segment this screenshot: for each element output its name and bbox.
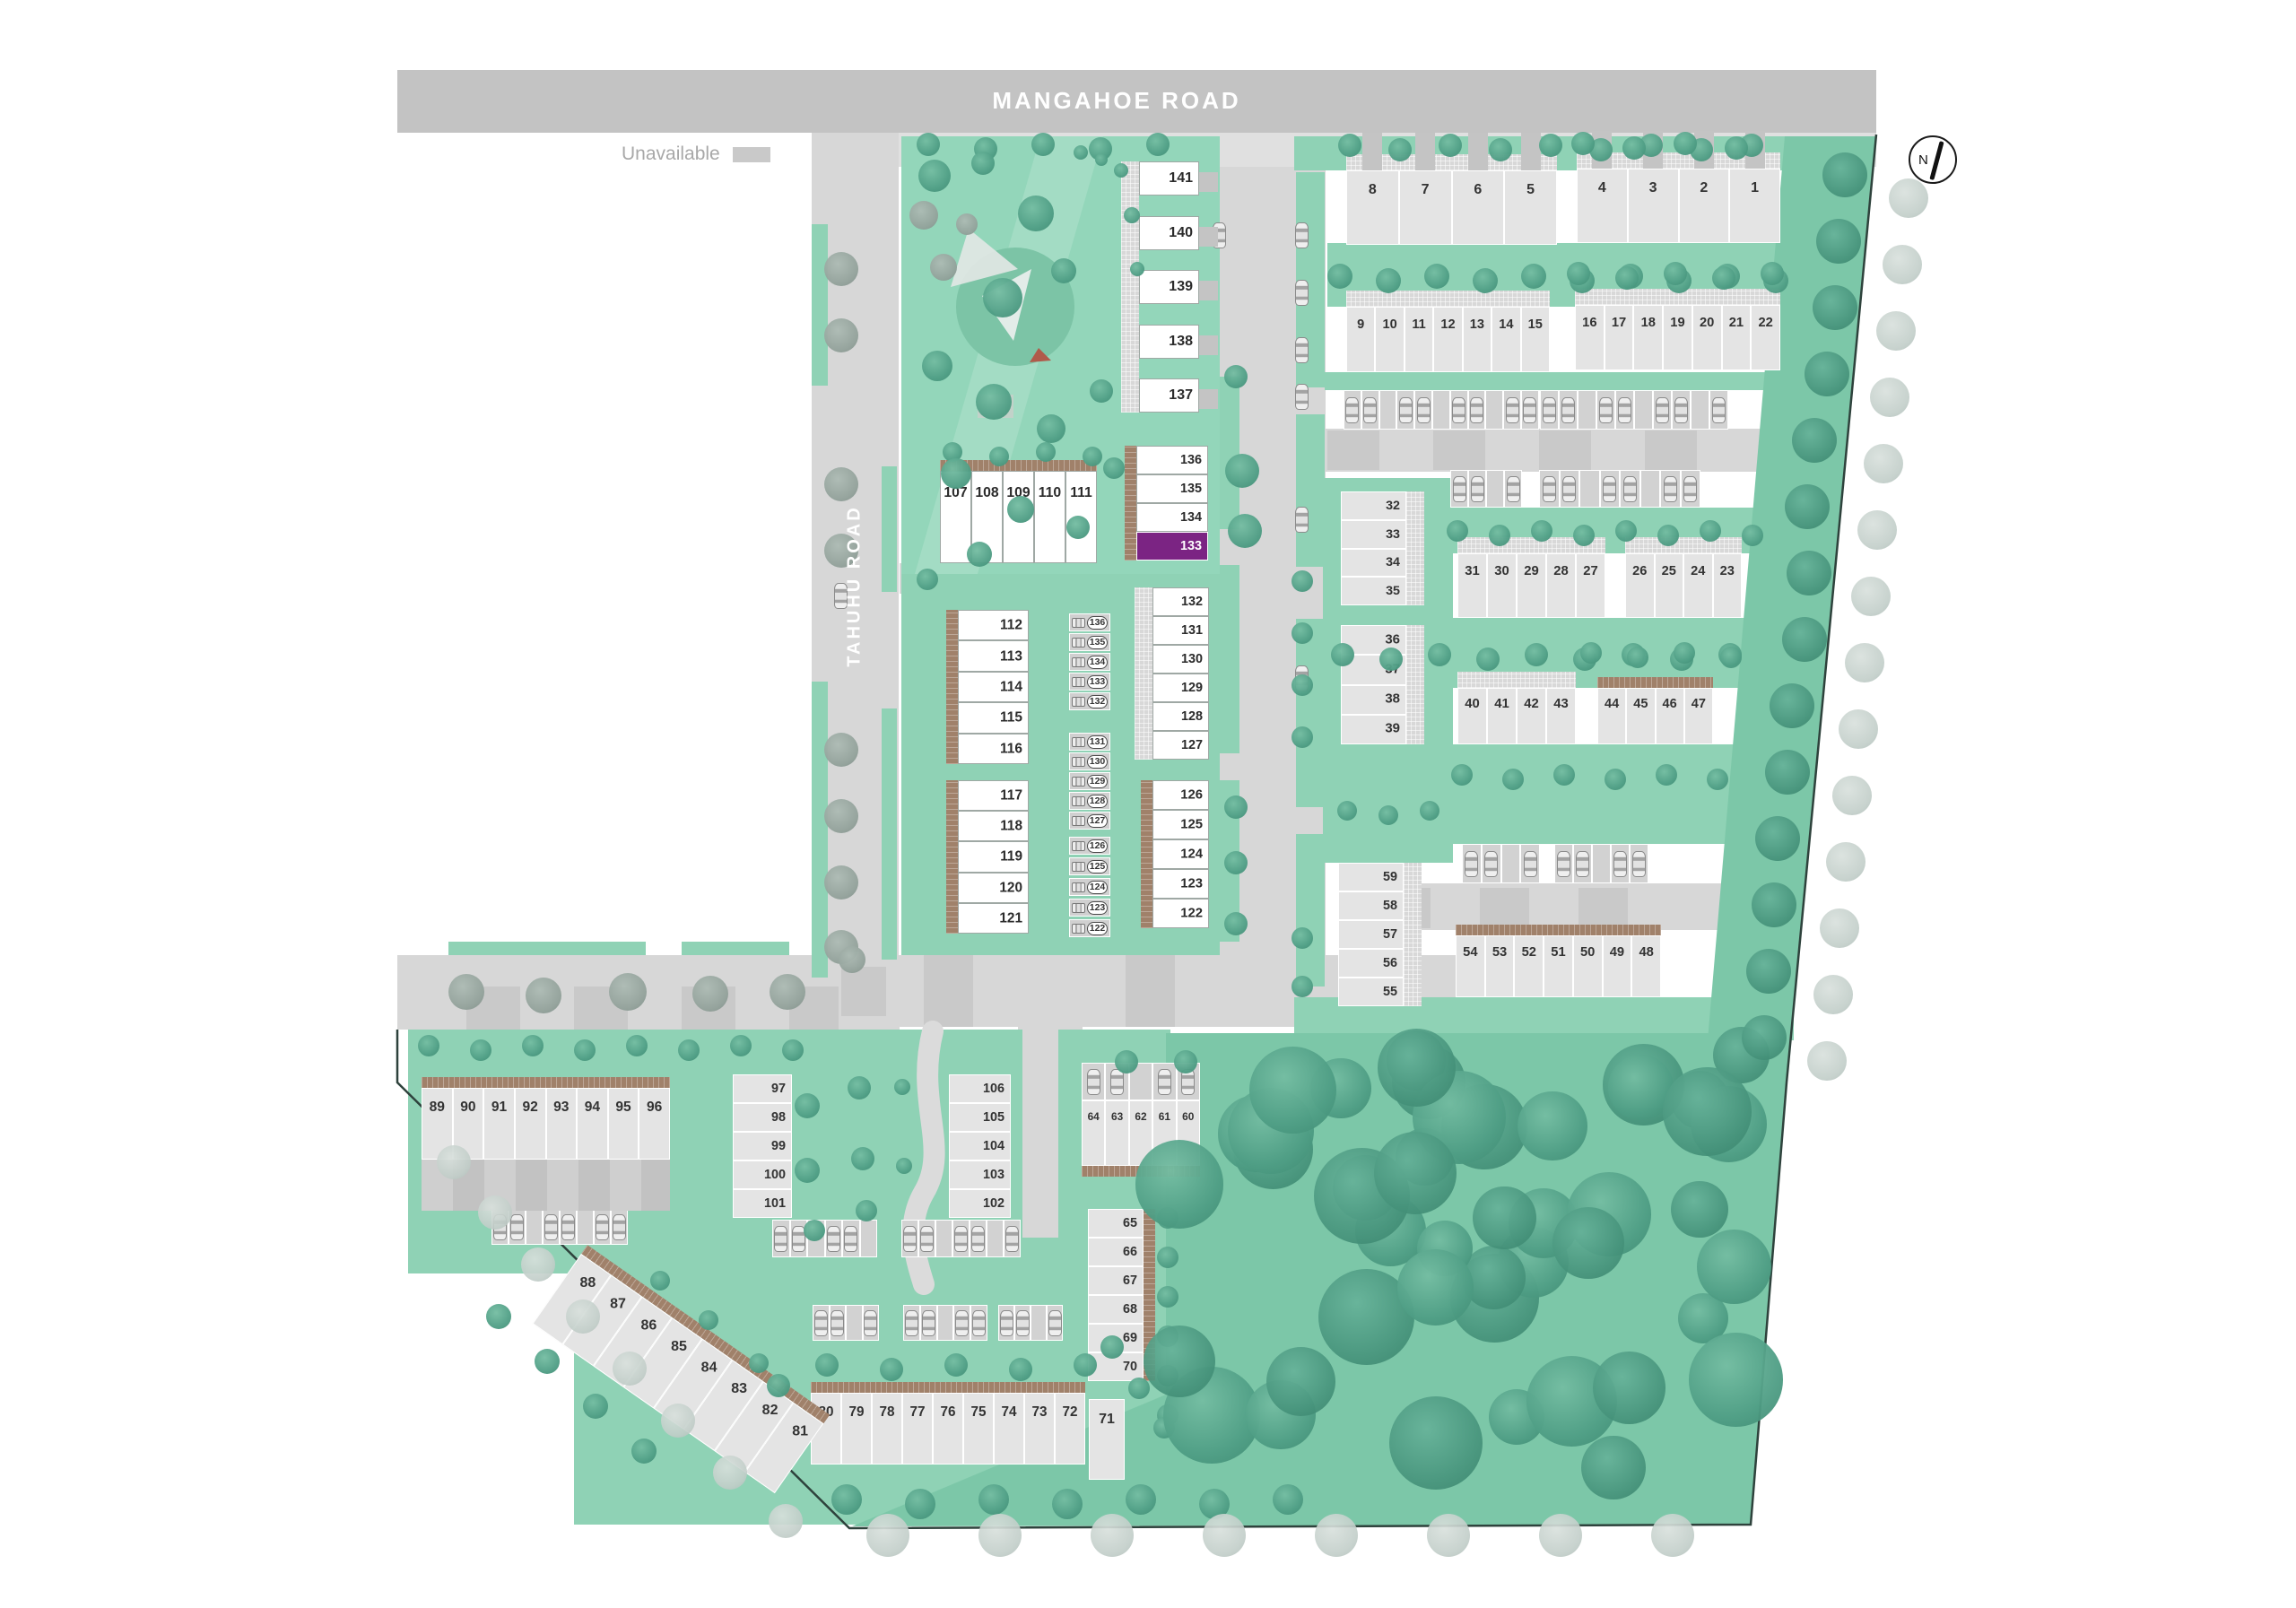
lot-1: 1: [1729, 169, 1780, 243]
tree-icon: [1338, 134, 1361, 157]
lot-115[interactable]: 115: [958, 702, 1029, 733]
tree-icon: [437, 1145, 471, 1179]
parking-stall: [1486, 470, 1504, 508]
lot-13: 13: [1463, 307, 1492, 372]
lot-112[interactable]: 112: [958, 610, 1029, 640]
patio: [1406, 625, 1424, 744]
parking-bay-number: 126: [1087, 839, 1108, 853]
lot-130[interactable]: 130: [1152, 645, 1209, 674]
tree-icon: [692, 976, 728, 1012]
parking-bay-number: 134: [1087, 656, 1108, 669]
car-icon: [1072, 924, 1085, 934]
lot-139[interactable]: 139: [1139, 270, 1199, 304]
lot-134[interactable]: 134: [1136, 503, 1208, 532]
tree-icon: [1007, 496, 1034, 523]
lot-number: 61: [1153, 1101, 1175, 1123]
car-icon: [1072, 777, 1085, 787]
lot-106: 106: [949, 1074, 1011, 1103]
tree-icon: [1697, 1230, 1771, 1304]
compass-north-label: N: [1918, 152, 1928, 168]
lot-21: 21: [1722, 305, 1752, 370]
lot-number: 139: [1169, 280, 1193, 294]
tree-icon: [824, 733, 858, 767]
lot-number: 11: [1405, 308, 1432, 332]
lot-29: 29: [1517, 553, 1546, 618]
lot-number: 14: [1492, 308, 1519, 332]
car-icon: [1072, 618, 1085, 628]
patio: [1404, 863, 1422, 1006]
lot-number: 73: [1025, 1394, 1054, 1419]
tree-icon: [896, 1158, 912, 1174]
car-icon: [544, 1214, 558, 1240]
lot-number: 71: [1090, 1400, 1124, 1427]
parking-stall: [577, 1209, 594, 1245]
tree-icon: [851, 1147, 874, 1170]
tree-icon: [678, 1039, 700, 1061]
lot-number: 65: [1123, 1217, 1137, 1230]
tree-icon: [1539, 134, 1562, 157]
lot-110[interactable]: 110: [1034, 471, 1065, 563]
tree-icon: [1883, 245, 1922, 284]
lot-number: 35: [1386, 585, 1400, 597]
car-icon: [1363, 397, 1377, 423]
lot-136[interactable]: 136: [1136, 446, 1208, 474]
tree-icon: [1787, 551, 1831, 595]
tree-icon: [1627, 647, 1648, 668]
driveway: [1199, 389, 1218, 409]
lot-123[interactable]: 123: [1152, 869, 1209, 899]
lot-76: 76: [933, 1393, 963, 1465]
tree-icon: [1203, 1514, 1246, 1557]
tree-icon: [930, 254, 957, 281]
lot-3: 3: [1628, 169, 1679, 243]
tree-icon: [1700, 520, 1721, 542]
tree-icon: [1439, 134, 1462, 157]
car-icon: [1087, 1069, 1100, 1095]
lot-number: 5: [1505, 171, 1556, 197]
tree-icon: [1839, 709, 1878, 749]
tree-icon: [1476, 648, 1500, 671]
tree-icon: [1100, 1335, 1124, 1359]
tree-icon: [956, 213, 978, 235]
lot-number: 95: [609, 1089, 639, 1115]
lot-number: 17: [1605, 306, 1633, 330]
lot-137[interactable]: 137: [1139, 378, 1199, 413]
car-icon: [903, 1226, 917, 1252]
tree-icon: [1224, 912, 1248, 935]
lot-number: 29: [1518, 554, 1545, 578]
lot-number: 129: [1181, 682, 1203, 694]
lot-number: 42: [1518, 689, 1545, 711]
parking-stall: [860, 1220, 878, 1257]
patio: [1406, 491, 1424, 605]
car-icon: [1664, 476, 1677, 502]
lot-9: 9: [1346, 307, 1375, 372]
patio: [1625, 537, 1742, 553]
tree-icon: [1424, 264, 1449, 289]
lot-72: 72: [1055, 1393, 1085, 1465]
lot-125[interactable]: 125: [1152, 810, 1209, 839]
lot-18: 18: [1633, 305, 1663, 370]
lot-cluster-c19: 979899100101: [733, 1074, 792, 1218]
car-icon: [1016, 1310, 1030, 1336]
car-icon: [814, 1310, 828, 1336]
lot-number: 113: [1000, 649, 1022, 663]
lot-number: 126: [1180, 788, 1203, 802]
driveway: [1199, 281, 1218, 300]
tree-icon: [1820, 908, 1859, 948]
lot-16: 16: [1575, 305, 1605, 370]
parking-bay-125: 125: [1069, 857, 1110, 875]
car-icon: [1452, 397, 1465, 423]
lot-number: 111: [1066, 472, 1096, 500]
tree-icon: [1807, 1041, 1847, 1081]
lot-number: 43: [1547, 689, 1575, 711]
car-icon: [1470, 397, 1483, 423]
lot-17: 17: [1605, 305, 1634, 370]
patio: [1346, 291, 1550, 307]
tree-icon: [526, 978, 561, 1013]
tree-icon: [1378, 1029, 1456, 1107]
parking-bay-number: 129: [1087, 775, 1108, 788]
car-icon: [971, 1226, 985, 1252]
tree-icon: [1615, 266, 1639, 290]
lot-cluster-c9: 40414243: [1457, 688, 1576, 744]
tree-icon: [478, 1195, 512, 1230]
lot-33: 33: [1341, 520, 1406, 549]
lot-cluster-c4: 16171819202122: [1575, 305, 1780, 370]
lot-114[interactable]: 114: [958, 672, 1029, 702]
lot-135[interactable]: 135: [1136, 474, 1208, 503]
car-icon: [864, 1310, 877, 1336]
tree-icon: [1378, 805, 1398, 825]
lot-number: 21: [1723, 306, 1751, 330]
tree-icon: [1664, 262, 1687, 285]
parking-bay-number: 128: [1087, 795, 1108, 808]
lot-133[interactable]: 133: [1136, 532, 1208, 561]
lot-126[interactable]: 126: [1152, 780, 1209, 810]
lot-131[interactable]: 131: [1152, 616, 1209, 645]
lot-128[interactable]: 128: [1152, 702, 1209, 731]
tree-icon: [1447, 520, 1468, 542]
lot-number: 10: [1376, 308, 1403, 332]
site-masterplan: 1361351341331321311301291281271261251241…: [0, 0, 2296, 1608]
lot-number: 24: [1684, 554, 1712, 578]
tree-icon: [1224, 365, 1248, 388]
lot-number: 15: [1522, 308, 1549, 332]
lot-number: 89: [422, 1089, 452, 1115]
lot-113[interactable]: 113: [958, 640, 1029, 671]
tree-icon: [1689, 1333, 1783, 1427]
lot-cluster-c20: 106105104103102: [949, 1074, 1011, 1218]
tree-icon: [1615, 520, 1637, 542]
lot-number: 18: [1634, 306, 1662, 330]
tree-icon: [1174, 1050, 1197, 1073]
lot-54: 54: [1456, 935, 1485, 997]
lot-number: 39: [1385, 723, 1400, 736]
tree-icon: [1473, 268, 1498, 293]
tree-icon: [566, 1299, 600, 1334]
car-icon: [1295, 384, 1309, 410]
lot-number: 79: [842, 1394, 871, 1419]
lot-number: 44: [1598, 689, 1625, 711]
lot-number: 19: [1664, 306, 1692, 330]
lot-number: 119: [1000, 850, 1022, 864]
lot-number: 53: [1486, 936, 1514, 960]
tree-icon: [1291, 976, 1313, 997]
lot-10: 10: [1375, 307, 1404, 372]
lot-129[interactable]: 129: [1152, 674, 1209, 702]
tree-icon: [824, 252, 858, 286]
tree-icon: [1124, 207, 1140, 223]
lot-41: 41: [1487, 688, 1517, 744]
tree-icon: [1707, 769, 1728, 790]
tree-icon: [1066, 516, 1090, 539]
tree-icon: [1379, 648, 1403, 671]
lot-124[interactable]: 124: [1152, 839, 1209, 869]
lot-number: 116: [1000, 742, 1022, 755]
parking-bay-127: 127: [1069, 812, 1110, 830]
parking-bay-134: 134: [1069, 653, 1110, 671]
lot-8: 8: [1346, 170, 1399, 245]
lot-58: 58: [1338, 891, 1404, 920]
lot-number: 103: [983, 1169, 1004, 1181]
lot-35: 35: [1341, 577, 1406, 605]
lot-cluster-c8: 26252423: [1625, 553, 1742, 618]
tree-icon: [1857, 510, 1897, 550]
lot-number: 56: [1383, 957, 1397, 969]
tree-icon: [1845, 643, 1884, 682]
parking-bay-number: 135: [1087, 636, 1108, 649]
lot-140[interactable]: 140: [1139, 216, 1199, 250]
tree-icon: [1755, 816, 1800, 861]
lot-number: 58: [1383, 900, 1397, 912]
lot-51: 51: [1544, 935, 1573, 997]
lot-26: 26: [1625, 553, 1655, 618]
tree-icon: [1018, 196, 1054, 231]
tree-icon: [1451, 764, 1473, 786]
lot-32: 32: [1341, 491, 1406, 520]
tree-icon: [1539, 1514, 1582, 1557]
lot-cluster-c26: 141140139138137: [1139, 161, 1199, 413]
lot-number: 72: [1056, 1394, 1084, 1419]
lot-103: 103: [949, 1160, 1011, 1189]
tree-icon: [1826, 842, 1865, 882]
tree-icon: [1146, 133, 1170, 156]
lot-number: 6: [1453, 171, 1504, 197]
lot-132[interactable]: 132: [1152, 587, 1209, 616]
lot-91: 91: [483, 1088, 515, 1160]
car-icon: [1072, 903, 1085, 913]
lot-number: 3: [1629, 169, 1678, 196]
lot-number: 133: [1180, 540, 1202, 552]
tree-icon: [976, 384, 1012, 420]
lot-number: 93: [547, 1089, 577, 1115]
lot-cluster-c10: 44454647: [1597, 688, 1713, 744]
tree-icon: [613, 1352, 647, 1386]
tree-icon: [894, 1079, 910, 1095]
lot-101: 101: [733, 1189, 792, 1218]
lot-47: 47: [1684, 688, 1713, 744]
parking-stall: [1691, 390, 1709, 430]
tree-icon: [1376, 268, 1401, 293]
lot-number: 97: [771, 1082, 786, 1095]
lot-number: 50: [1574, 936, 1602, 960]
tree-icon: [1331, 643, 1354, 666]
lot-number: 16: [1576, 306, 1604, 330]
lot-104: 104: [949, 1132, 1011, 1160]
tree-icon: [1489, 525, 1510, 546]
parking-bay-126: 126: [1069, 837, 1110, 855]
tree-icon: [626, 1035, 648, 1056]
lot-number: 74: [995, 1394, 1023, 1419]
parking-stall: [1634, 390, 1653, 430]
lot-7: 7: [1399, 170, 1452, 245]
lot-121[interactable]: 121: [958, 903, 1029, 934]
tree-icon: [866, 1514, 909, 1557]
lot-number: 22: [1752, 306, 1779, 330]
tree-icon: [1663, 1067, 1751, 1155]
tree-icon: [1224, 795, 1248, 819]
timber-deck: [1456, 925, 1661, 935]
car-icon: [1072, 882, 1085, 892]
tree-icon: [1752, 882, 1796, 927]
lot-cluster-c7: 3130292827: [1457, 553, 1605, 618]
lot-95: 95: [608, 1088, 639, 1160]
lot-number: 81: [782, 1411, 817, 1439]
tree-icon: [583, 1394, 608, 1419]
lot-number: 121: [999, 911, 1022, 925]
lot-number: 117: [1000, 788, 1022, 802]
lot-number: 45: [1627, 689, 1654, 711]
car-icon: [613, 1214, 626, 1240]
tree-icon: [989, 447, 1009, 466]
car-icon: [1295, 280, 1309, 306]
tree-icon: [917, 133, 940, 156]
lot-number: 59: [1383, 871, 1397, 883]
lot-number: 99: [771, 1140, 786, 1152]
lot-120[interactable]: 120: [958, 873, 1029, 903]
lot-31: 31: [1457, 553, 1487, 618]
tree-icon: [1114, 163, 1128, 178]
parking-bay-128: 128: [1069, 792, 1110, 810]
lot-122[interactable]: 122: [1152, 899, 1209, 928]
tree-icon: [1337, 801, 1357, 821]
lot-23: 23: [1713, 553, 1743, 618]
tree-icon: [1427, 1514, 1470, 1557]
tree-icon: [880, 1358, 903, 1381]
lot-number: 98: [771, 1111, 786, 1124]
lot-75: 75: [963, 1393, 994, 1465]
lot-cluster-c6: 36373839: [1341, 625, 1406, 744]
lot-73: 73: [1024, 1393, 1055, 1465]
legend: Unavailable: [622, 143, 770, 165]
timber-deck: [1597, 677, 1713, 688]
car-icon: [844, 1226, 857, 1252]
car-icon: [831, 1310, 844, 1336]
lot-number: 13: [1464, 308, 1491, 332]
tree-icon: [1389, 1396, 1483, 1490]
lot-77: 77: [902, 1393, 933, 1465]
parking-bay-number: 131: [1087, 735, 1108, 749]
lot-15: 15: [1521, 307, 1550, 372]
tree-icon: [795, 1093, 820, 1118]
lot-56: 56: [1338, 949, 1404, 978]
legend-unavailable-swatch: [733, 147, 770, 162]
lot-number: 110: [1035, 472, 1065, 500]
tree-icon: [1291, 674, 1313, 696]
lot-119[interactable]: 119: [958, 841, 1029, 872]
lot-74: 74: [994, 1393, 1024, 1465]
driveway: [1468, 133, 1488, 170]
parking-stall: [1592, 844, 1611, 883]
tree-icon: [1420, 801, 1439, 821]
car-icon: [1543, 397, 1556, 423]
car-icon: [1005, 1226, 1019, 1252]
tree-icon: [470, 1039, 491, 1061]
lot-141[interactable]: 141: [1139, 161, 1199, 196]
tree-icon: [1674, 642, 1695, 664]
lot-127[interactable]: 127: [1152, 731, 1209, 760]
tree-icon: [609, 973, 647, 1011]
tree-icon: [1473, 1186, 1536, 1250]
lot-number: 68: [1123, 1303, 1137, 1316]
tree-icon: [1531, 520, 1552, 542]
parking-bay-133: 133: [1069, 673, 1110, 691]
lot-number: 32: [1386, 500, 1400, 512]
lot-138[interactable]: 138: [1139, 325, 1199, 359]
parking-stall: [1485, 390, 1503, 430]
lot-number: 91: [484, 1089, 514, 1115]
tree-icon: [1605, 769, 1626, 790]
lot-118[interactable]: 118: [958, 811, 1029, 841]
lot-66: 66: [1088, 1238, 1144, 1266]
tree-icon: [1388, 138, 1412, 161]
lot-cluster-c27: 136135134133: [1136, 446, 1208, 561]
lot-number: 124: [1180, 847, 1203, 861]
tree-icon: [418, 1035, 439, 1056]
lot-116[interactable]: 116: [958, 734, 1029, 764]
tree-icon: [1832, 776, 1872, 815]
driveway: [1199, 227, 1218, 247]
tree-icon: [1580, 642, 1602, 664]
tree-icon: [983, 278, 1022, 317]
lot-number: 38: [1385, 693, 1400, 707]
timber-deck: [1125, 446, 1136, 561]
car-icon: [1618, 397, 1631, 423]
lot-117[interactable]: 117: [958, 780, 1029, 811]
tree-icon: [1327, 264, 1352, 289]
lot-number: 30: [1488, 554, 1516, 578]
lot-24: 24: [1683, 553, 1713, 618]
tree-icon: [1816, 219, 1861, 264]
lot-number: 96: [639, 1089, 669, 1115]
parking-stall: [937, 1305, 954, 1341]
lot-53: 53: [1485, 935, 1515, 997]
tree-icon: [1674, 132, 1697, 155]
tree-icon: [713, 1456, 747, 1490]
car-icon: [1599, 397, 1613, 423]
north-compass-icon: N: [1909, 135, 1957, 184]
parking-stall: [1031, 1305, 1047, 1341]
lot-number: 36: [1385, 633, 1400, 647]
tree-icon: [909, 201, 938, 230]
tree-icon: [1502, 769, 1524, 790]
lot-number: 78: [873, 1394, 901, 1419]
lot-64: 64: [1082, 1100, 1105, 1166]
lot-number: 8: [1347, 171, 1398, 197]
parking-bay-number: 136: [1087, 616, 1108, 630]
